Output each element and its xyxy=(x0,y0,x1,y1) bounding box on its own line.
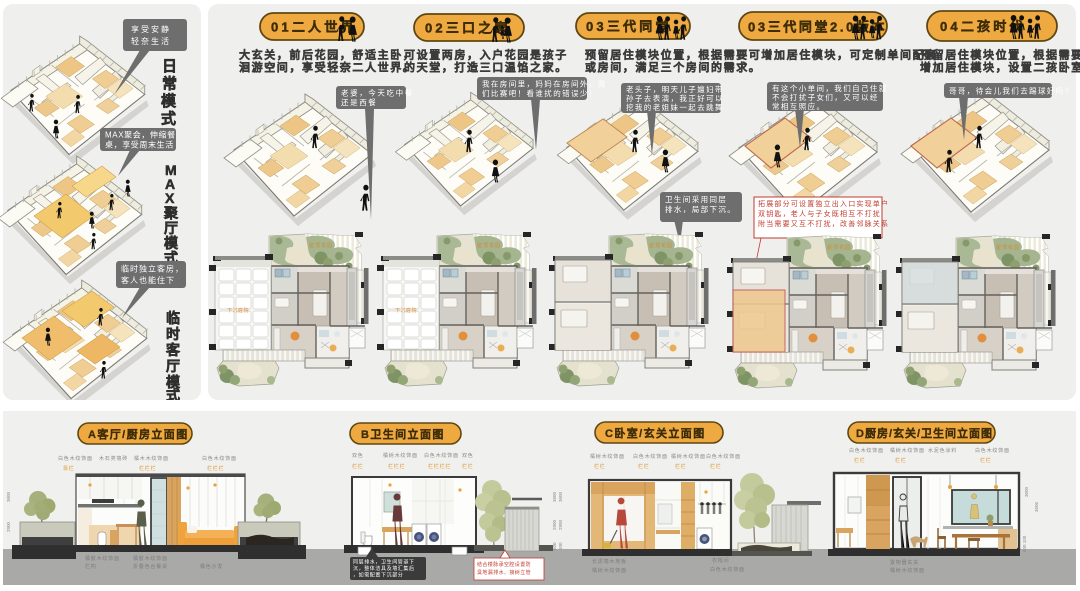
svg-text:栏栏: 栏栏 xyxy=(594,463,606,470)
svg-text:预留居住模块位置，根据需要可: 预留居住模块位置，根据需要可 xyxy=(920,48,1080,62)
svg-text:橘树木纹饰面: 橘树木纹饰面 xyxy=(890,567,925,574)
svg-text:橘树木纹饰面: 橘树木纹饰面 xyxy=(592,567,627,574)
svg-text:长虐墙木地板: 长虐墙木地板 xyxy=(592,558,627,565)
svg-text:我在房间里，妈妈在房间外，我: 我在房间里，妈妈在房间外，我 xyxy=(482,79,607,89)
svg-text:栏栏栏: 栏栏栏 xyxy=(388,463,405,470)
svg-text:预留居住模块位置，根据需要可增加居住模块，可定制单间配套: 预留居住模块位置，根据需要可增加居住模块，可定制单间配套 xyxy=(585,48,938,62)
svg-text:哥哥，待会儿我们去踢球好吗？: 哥哥，待会儿我们去踢球好吗？ xyxy=(949,86,1074,96)
svg-text:式: 式 xyxy=(161,110,176,128)
svg-text:厅: 厅 xyxy=(166,358,180,374)
svg-text:增加居住模块，设置二孩卧室。: 增加居住模块，设置二孩卧室。 xyxy=(920,60,1080,74)
svg-text:橘木木纹饰面: 橘木木纹饰面 xyxy=(134,455,169,462)
svg-text:3606: 3606 xyxy=(1034,501,1039,512)
svg-text:双色: 双色 xyxy=(462,452,474,459)
svg-text:附当需要又互不打扰，改善邻脉关系: 附当需要又互不打扰，改善邻脉关系 xyxy=(758,219,889,228)
svg-text:厅: 厅 xyxy=(164,220,178,236)
svg-text:常相互照应。: 常相互照应。 xyxy=(772,101,825,111)
svg-text:3600: 3600 xyxy=(552,491,557,502)
svg-text:式: 式 xyxy=(166,387,180,400)
svg-text:，如需配置下沉部分: ，如需配置下沉部分 xyxy=(353,572,403,579)
svg-text:白色木纹饰面: 白色木纹饰面 xyxy=(975,447,1010,454)
svg-text:水泥色涂料: 水泥色涂料 xyxy=(928,447,957,454)
svg-text:们比赛吧！看谁扰的错误少！: 们比赛吧！看谁扰的错误少！ xyxy=(482,88,598,98)
svg-text:挖我的老姐妹一起去跳舞: 挖我的老姐妹一起去跳舞 xyxy=(626,102,724,112)
svg-text:栏栏栏栏: 栏栏栏栏 xyxy=(428,463,451,470)
svg-text:桌，享受周末生活: 桌，享受周末生活 xyxy=(105,140,174,150)
svg-text:置物器玄关: 置物器玄关 xyxy=(890,559,919,566)
svg-text:不会打扰子女们，又可以经: 不会打扰子女们，又可以经 xyxy=(772,92,879,102)
svg-text:白色木纹饰面: 白色木纹饰面 xyxy=(58,455,93,462)
svg-text:橘胶木纹饰面: 橘胶木纹饰面 xyxy=(85,555,120,562)
svg-text:时: 时 xyxy=(166,326,180,342)
svg-text:客人也能住下: 客人也能住下 xyxy=(121,275,175,285)
svg-text:橘树木纹饰面: 橘树木纹饰面 xyxy=(890,447,925,454)
svg-text:聚: 聚 xyxy=(163,205,179,221)
svg-text:结合楼脉承空腔设置防: 结合楼脉承空腔设置防 xyxy=(477,561,531,568)
svg-text:白色木纹饰面: 白色木纹饰面 xyxy=(633,453,668,460)
svg-text:大玄关，前后花园，舒适主卧，: 大玄关，前后花园，舒适主卧， xyxy=(239,48,415,62)
svg-text:有这个小单间，我们自己住就: 有这个小单间，我们自己住就 xyxy=(772,83,888,93)
svg-text:A客厅/厨房立面图: A客厅/厨房立面图 xyxy=(88,427,189,441)
svg-text:双色: 双色 xyxy=(352,452,364,459)
svg-text:橘胶木纹饰面: 橘胶木纹饰面 xyxy=(133,555,168,562)
svg-text:栏栏栏: 栏栏栏 xyxy=(207,465,224,472)
svg-text:轻奈生活: 轻奈生活 xyxy=(131,36,171,46)
svg-text:排水，局部下沉。: 排水，局部下沉。 xyxy=(665,204,736,214)
svg-text:白色木纹饰面: 白色木纹饰面 xyxy=(706,453,741,460)
svg-text:沉，整体洁具及墙汇集后: 沉，整体洁具及墙汇集后 xyxy=(353,565,415,572)
svg-text:橘色沙发: 橘色沙发 xyxy=(200,563,223,570)
svg-text:C卧室/玄关立面图: C卧室/玄关立面图 xyxy=(605,426,706,440)
svg-text:600 100: 600 100 xyxy=(1022,535,1027,552)
svg-text:栏构: 栏构 xyxy=(85,563,97,570)
svg-text:日: 日 xyxy=(162,58,177,75)
svg-text:还是西餐: 还是西餐 xyxy=(341,97,377,107)
svg-text:老头子，明天儿子嬗妇带: 老头子，明天儿子嬗妇带 xyxy=(626,84,724,94)
svg-text:拓展部分可设置独立出入口实现单户: 拓展部分可设置独立出入口实现单户 xyxy=(758,199,889,208)
svg-text:双钥匙，老人与子女既相互不打扰: 双钥匙，老人与子女既相互不打扰 xyxy=(758,209,881,218)
svg-text:常: 常 xyxy=(162,75,177,93)
svg-text:靠栏: 靠栏 xyxy=(63,465,75,472)
svg-text:栏栏: 栏栏 xyxy=(352,463,364,470)
svg-text:栏栏: 栏栏 xyxy=(895,457,907,464)
svg-text:模: 模 xyxy=(161,92,177,110)
svg-text:老婆，今天吃中餐: 老婆，今天吃中餐 xyxy=(341,88,414,98)
svg-text:栏栏: 栏栏 xyxy=(854,457,866,464)
svg-text:3600: 3600 xyxy=(1024,486,1029,497)
svg-text:白色木纹饰面: 白色木纹饰面 xyxy=(710,566,745,573)
svg-text:同层排水，卫生间管道下: 同层排水，卫生间管道下 xyxy=(353,559,415,566)
svg-text:可设置两房，入户花园是孩子: 可设置两房，入户花园是孩子 xyxy=(404,48,568,62)
svg-text:03三代同堂2.0版本: 03三代同堂2.0版本 xyxy=(748,20,887,35)
svg-text:木石类墙砖: 木石类墙砖 xyxy=(99,455,128,462)
svg-text:600: 600 xyxy=(552,542,557,550)
svg-text:橘树木纹饰面: 橘树木纹饰面 xyxy=(590,453,625,460)
svg-text:MAX聚会，伸缩餐: MAX聚会，伸缩餐 xyxy=(105,130,176,140)
svg-text:2900: 2900 xyxy=(6,521,11,532)
svg-text:临: 临 xyxy=(166,310,180,326)
svg-text:折叠色台餐桌: 折叠色台餐桌 xyxy=(133,563,168,570)
svg-text:临时独立客房，: 临时独立客房， xyxy=(121,264,184,274)
svg-text:栏栏: 栏栏 xyxy=(980,457,992,464)
svg-text:孙子去表演，我正好可以: 孙子去表演，我正好可以 xyxy=(626,93,724,103)
svg-text:栏栏: 栏栏 xyxy=(675,463,687,470)
svg-text:栏栏: 栏栏 xyxy=(462,463,474,470)
svg-text:2900: 2900 xyxy=(558,519,563,530)
svg-text:客: 客 xyxy=(165,342,181,358)
svg-text:X: X xyxy=(165,190,175,206)
svg-text:栏栏: 栏栏 xyxy=(638,463,650,470)
svg-text:3600: 3600 xyxy=(558,491,563,502)
svg-text:卫生间采用同层: 卫生间采用同层 xyxy=(665,194,727,204)
svg-text:橘树木纹饰面: 橘树木纹饰面 xyxy=(383,452,418,459)
svg-text:臭地漏排水、接树立管: 臭地漏排水、接树立管 xyxy=(477,569,531,576)
svg-text:100: 100 xyxy=(558,542,563,550)
svg-text:白色木纹饰面: 白色木纹饰面 xyxy=(424,452,459,459)
svg-text:洄游空间，享受轻奈二人世界。: 洄游空间，享受轻奈二人世界。 xyxy=(239,60,415,74)
svg-text:橘树木纹饰面: 橘树木纹饰面 xyxy=(671,453,706,460)
svg-text:D厨房/玄关/卫生间立面图: D厨房/玄关/卫生间立面图 xyxy=(856,426,993,440)
svg-text:享受安静: 享受安静 xyxy=(131,24,171,34)
svg-text:B卫生间立面图: B卫生间立面图 xyxy=(361,427,445,441)
svg-text:白色木纹饰面: 白色木纹饰面 xyxy=(849,447,884,454)
svg-text:白色木纹饰面: 白色木纹饰面 xyxy=(202,455,237,462)
svg-text:的天堂，打造三口温馅之家。: 的天堂，打造三口温馅之家。 xyxy=(404,60,568,74)
svg-text:2900: 2900 xyxy=(552,519,557,530)
svg-text:栏栏栏: 栏栏栏 xyxy=(139,465,156,472)
svg-text:模: 模 xyxy=(164,235,179,251)
svg-text:衣帽间: 衣帽间 xyxy=(712,557,729,564)
svg-text:3600: 3600 xyxy=(6,491,11,502)
svg-text:栏栏: 栏栏 xyxy=(710,463,722,470)
svg-text:或房间，满足三个房间的需求。: 或房间，满足三个房间的需求。 xyxy=(585,60,761,74)
